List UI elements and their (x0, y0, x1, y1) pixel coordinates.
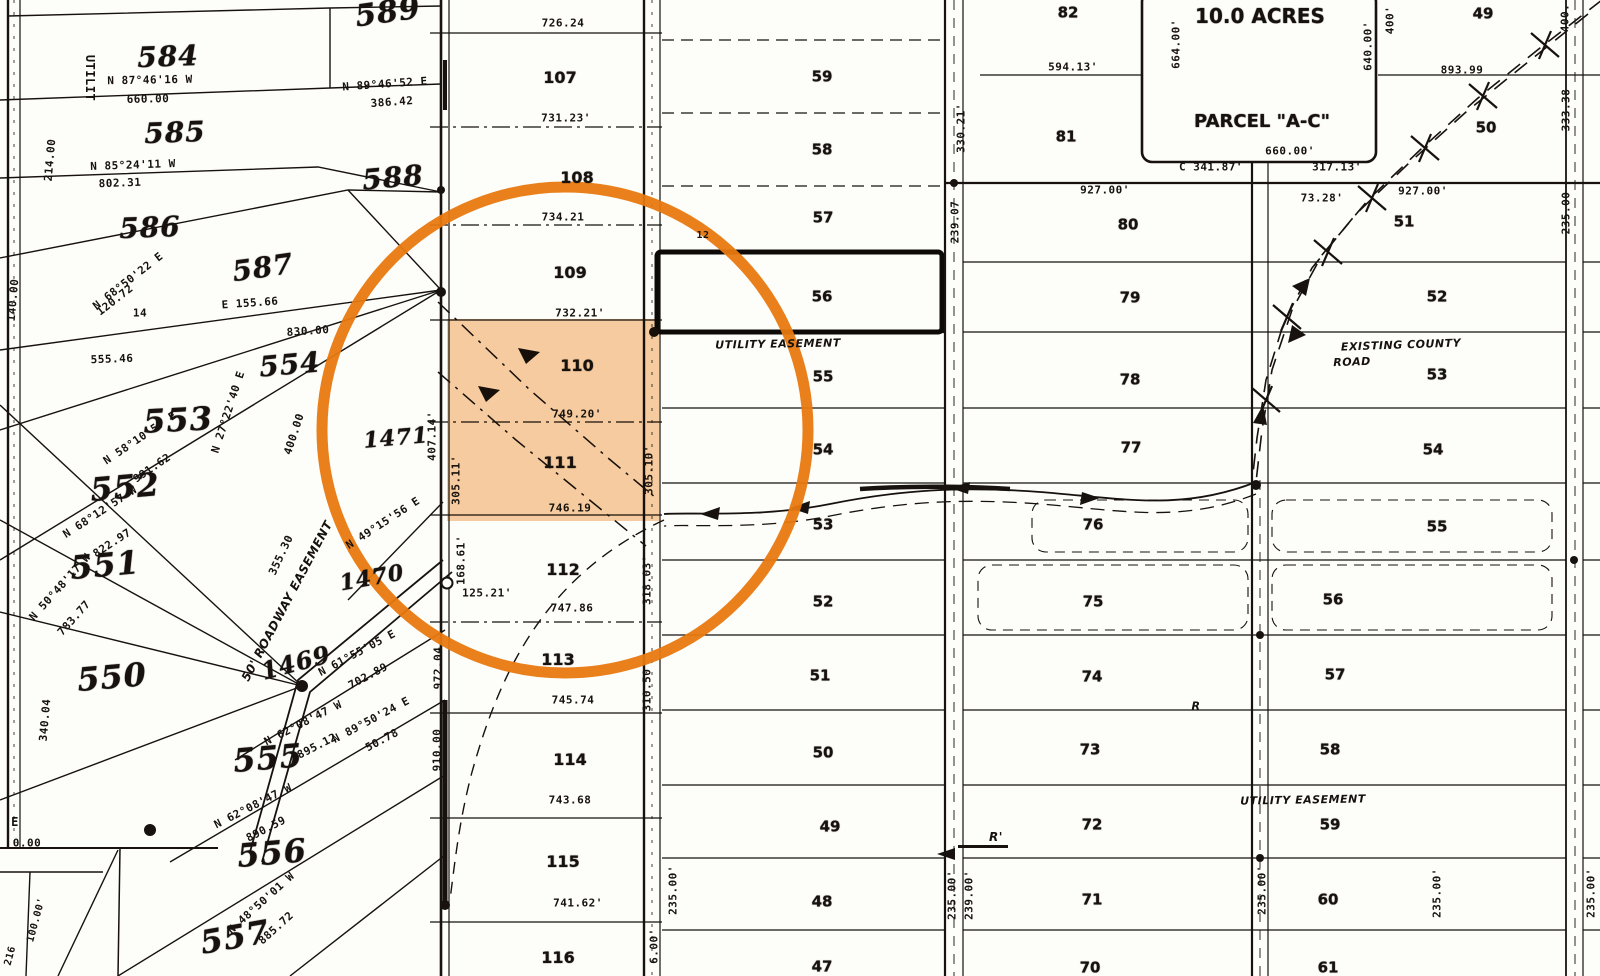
lot-label-59r: 59 (1320, 818, 1341, 833)
plat-map-canvas: 5845855865875885895545535525515505555565… (0, 0, 1600, 976)
lot-label-76: 76 (1083, 518, 1104, 533)
lot-label-49: 49 (820, 820, 841, 835)
lot-label-81: 81 (1056, 130, 1077, 145)
meas-400-a: 400' (1385, 6, 1396, 35)
lot-label-51: 51 (810, 669, 831, 684)
lot-label-51r: 51 (1394, 215, 1415, 230)
lot-label-54r: 54 (1423, 443, 1444, 458)
lot-label-550: 550 (76, 658, 148, 696)
meas-741-62: 741.62' (553, 898, 603, 909)
meas-830-00: 830.00 (286, 324, 329, 338)
lot-label-115: 115 (546, 854, 579, 870)
lot-label-110: 110 (560, 358, 593, 374)
lot-label-59: 59 (812, 70, 833, 85)
lot-label-109: 109 (553, 265, 586, 281)
meas-745-74: 745.74 (552, 695, 595, 706)
lot-label-585: 585 (144, 118, 206, 148)
lot-label-58r: 58 (1320, 743, 1341, 758)
meas-305-11: 305.11' (451, 455, 462, 505)
lot-label-589: 589 (353, 0, 422, 32)
lot-label-70: 70 (1080, 961, 1101, 976)
lot-label-54: 54 (813, 443, 834, 458)
lot-label-57r: 57 (1325, 668, 1346, 683)
meas-927-00-a: 927.00' (1080, 185, 1130, 196)
lot-label-78: 78 (1120, 373, 1141, 388)
meas-340-04: 340.04 (38, 698, 53, 742)
meas-216: 216 (4, 945, 19, 966)
lot-label-52: 52 (813, 595, 834, 610)
meas-73-28: 73.28' (1301, 193, 1344, 204)
meas-318-03: 318.03' (642, 555, 653, 605)
note-existing-county: EXISTING COUNTY (1341, 337, 1462, 352)
lot-label-56r: 56 (1323, 593, 1344, 608)
meas-317-13: 317.13' (1312, 162, 1362, 173)
bearing-n89-46-52-e: N 89°46'52 E (342, 76, 428, 93)
meas-r-prime: R' (989, 831, 1003, 843)
meas-e: E (11, 816, 19, 828)
meas-640-00: 640.00' (1363, 21, 1374, 71)
meas-100-00: 100.00' (26, 897, 47, 944)
meas-12: 12 (696, 231, 709, 241)
meas-239-00: 239.00' (964, 870, 975, 920)
note-utility-left: UTILIT (84, 55, 96, 101)
lot-label-588: 588 (361, 161, 425, 194)
meas-239-07: 239.07 (950, 201, 961, 244)
meas-893-99: 893.99 (1441, 65, 1484, 76)
meas-594-13: 594.13' (1048, 62, 1098, 73)
note-existing-road: ROAD (1333, 356, 1371, 368)
meas-927-00-b: 927.00' (1398, 186, 1448, 197)
meas-555-46: 555.46 (90, 353, 133, 365)
lot-label-75: 75 (1083, 595, 1104, 610)
meas-214-00: 214.00 (43, 138, 58, 182)
lot-label-584: 584 (137, 42, 199, 72)
meas-726-24: 726.24 (542, 18, 585, 29)
lot-label-82: 82 (1058, 6, 1079, 21)
meas-235-00-i: 235.00' (1432, 868, 1443, 918)
lot-label-107: 107 (543, 70, 576, 86)
plat-labels-layer: 5845855865875885895545535525515505555565… (0, 0, 1600, 976)
lot-label-55: 55 (813, 370, 834, 385)
lot-label-1471: 1471 (363, 424, 430, 452)
meas-e-155-66: E 155.66 (221, 296, 279, 311)
meas-333-38: 333.38 (1561, 89, 1572, 132)
bearing-n27-22-40-e: N 27°22'40 E (210, 370, 247, 455)
meas-310-50: 310.50 (642, 669, 653, 712)
lot-label-52r: 52 (1427, 290, 1448, 305)
meas-168-61: 168.61' (456, 535, 467, 585)
lot-label-111: 111 (543, 455, 576, 471)
lot-label-72: 72 (1082, 818, 1103, 833)
meas-731-23: 731.23' (541, 113, 591, 124)
lot-label-56: 56 (812, 290, 833, 305)
parcel-acres-label: 10.0 ACRES (1195, 6, 1325, 26)
note-utility-easement-2: UTILITY EASEMENT (1240, 793, 1366, 806)
lot-label-50r: 50 (1476, 121, 1497, 136)
meas-702-89: 702.89 (347, 661, 390, 691)
lot-label-113: 113 (541, 652, 574, 668)
meas-972-04: 972.04 (433, 647, 444, 690)
meas-749-20: 749.20' (552, 409, 602, 420)
meas-235-00-f: 235.00' (668, 865, 679, 915)
lot-label-80: 80 (1118, 218, 1139, 233)
meas-235-00-h: 235.00' (1257, 865, 1268, 915)
bearing-n49-15-56-e: N 49°15'56 E (344, 495, 422, 551)
lot-label-114: 114 (553, 752, 586, 768)
lot-label-55r: 55 (1427, 520, 1448, 535)
lot-label-57: 57 (813, 211, 834, 226)
meas-0-00: 0.00 (13, 838, 42, 849)
lot-label-49r: 49 (1473, 7, 1494, 22)
meas-341-87: C 341.87' (1179, 162, 1243, 173)
meas-664-00: 664.00' (1171, 19, 1182, 69)
lot-label-53: 53 (813, 518, 834, 533)
meas-235-00-e: 235.00 (1561, 192, 1572, 235)
meas-910-00: 910.00 (432, 729, 443, 772)
meas-732-21: 732.21' (555, 308, 605, 319)
bearing-n87-46-16-w: N 87°46'16 W (107, 74, 193, 86)
meas-783-77: 783.77 (56, 598, 93, 637)
lot-label-1470: 1470 (338, 562, 406, 595)
lot-label-587: 587 (231, 250, 296, 286)
meas-746-19: 746.19 (549, 503, 592, 514)
meas-125-21: 125.21' (462, 588, 512, 599)
meas-734-21: 734.21 (542, 212, 585, 223)
meas-660-00-w: 660.00 (127, 93, 170, 105)
lot-label-50: 50 (813, 746, 834, 761)
meas-6-00: 6.00' (649, 928, 660, 964)
lot-label-61r: 61 (1318, 961, 1339, 976)
lot-label-58: 58 (812, 143, 833, 158)
meas-660-00: 660.00' (1265, 146, 1315, 157)
lot-label-47: 47 (812, 960, 833, 975)
lot-label-60r: 60 (1318, 893, 1339, 908)
lot-label-554: 554 (258, 348, 322, 381)
lot-label-74: 74 (1082, 670, 1103, 685)
note-utility-easement-1: UTILITY EASEMENT (715, 337, 841, 350)
lot-label-73: 73 (1080, 743, 1101, 758)
meas-r: R (1192, 701, 1201, 712)
lot-label-108: 108 (560, 170, 593, 186)
parcel-name-label: PARCEL "A-C" (1194, 113, 1330, 131)
lot-label-116: 116 (541, 950, 574, 966)
meas-386-42: 386.42 (370, 95, 413, 109)
lot-label-112: 112 (546, 562, 579, 578)
lot-label-48: 48 (812, 895, 833, 910)
meas-330-21: 330.21' (956, 103, 967, 153)
meas-140-00: 140.00 (6, 278, 21, 322)
meas-50-78: 50.78 (364, 727, 401, 753)
meas-743-68: 743.68 (549, 795, 592, 806)
meas-235-00-j: 235.00' (1586, 868, 1597, 918)
lot-label-586: 586 (119, 213, 181, 243)
meas-355-30: 355.30 (267, 533, 295, 576)
bearing-n85-24-11-w: N 85°24'11 W (90, 158, 176, 172)
lot-label-53r: 53 (1427, 368, 1448, 383)
meas-400-00: 400.00 (282, 412, 306, 456)
meas-895-12: 895.12 (295, 731, 338, 760)
meas-400-b: 400. (1560, 4, 1571, 33)
meas-407-14: 407.14' (427, 411, 438, 461)
meas-305-10: 305.10' (644, 445, 655, 495)
lot-label-77: 77 (1121, 441, 1142, 456)
meas-235-00-g: 235.00' (947, 870, 958, 920)
meas-747-86: 747.86 (551, 603, 594, 614)
meas-802-31: 802.31 (98, 177, 141, 189)
lot-label-79: 79 (1120, 291, 1141, 306)
lot-label-71: 71 (1082, 893, 1103, 908)
meas-14: 14 (133, 308, 147, 319)
